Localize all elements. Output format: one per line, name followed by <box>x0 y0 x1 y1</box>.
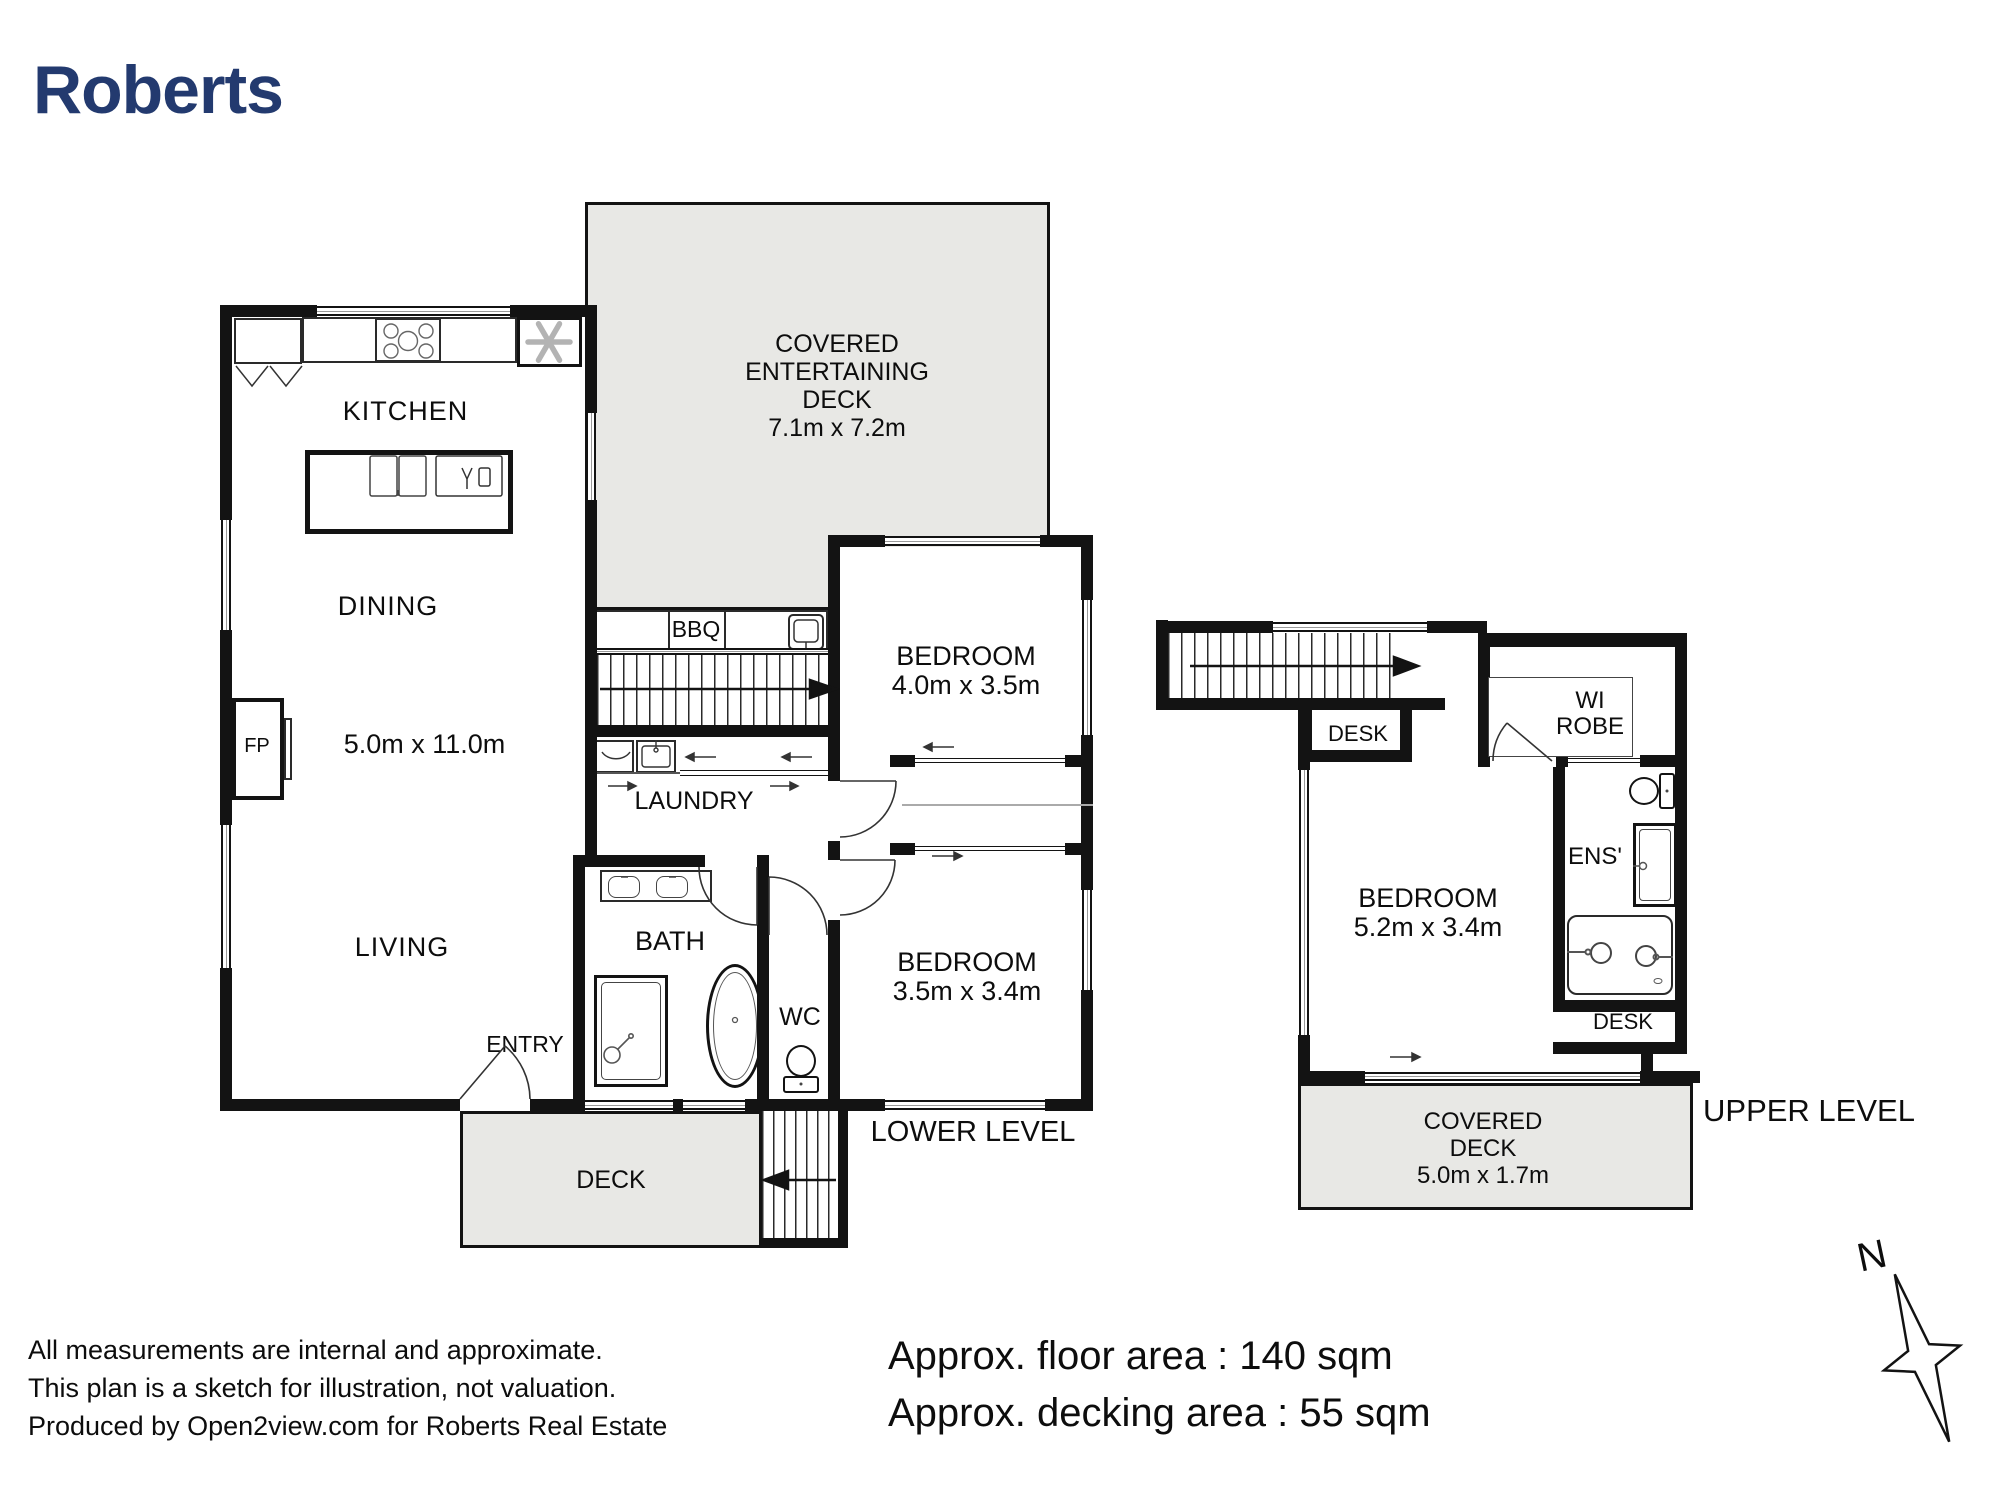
lower-level-title: LOWER LEVEL <box>848 1116 1098 1148</box>
desk1-label: DESK <box>1310 722 1406 747</box>
disclaimer-text: All measurements are internal and approx… <box>28 1331 667 1445</box>
wall <box>1640 1071 1700 1083</box>
desk2-label: DESK <box>1578 1010 1668 1035</box>
wall <box>1640 755 1687 767</box>
wall <box>1045 1099 1093 1111</box>
basin <box>1590 942 1612 964</box>
wall <box>828 841 840 860</box>
window <box>1082 600 1092 735</box>
wc-label: WC <box>772 1003 828 1031</box>
compass-north-label: N <box>1844 1229 1900 1283</box>
robe-wall <box>890 755 915 767</box>
upper-bedroom-label: BEDROOM 5.2m x 3.4m <box>1320 884 1536 942</box>
upper-covered-deck-label: COVERED DECK 5.0m x 1.7m <box>1353 1108 1613 1189</box>
toilet-cistern <box>783 1076 819 1093</box>
area-summary: Approx. floor area : 140 sqm Approx. dec… <box>888 1328 1431 1442</box>
wall <box>1081 535 1093 600</box>
wall <box>585 725 828 737</box>
window <box>885 536 1040 546</box>
toilet-cistern <box>1659 773 1675 809</box>
bath-label: BATH <box>610 926 730 956</box>
window <box>221 825 231 968</box>
bedroom2-door-arc <box>840 860 895 915</box>
wall <box>220 305 232 520</box>
bbq-sink <box>788 614 824 650</box>
wall <box>1675 1012 1687 1054</box>
deck-label: DECK <box>528 1166 694 1194</box>
toilet-bowl <box>786 1045 816 1077</box>
wall <box>1298 1071 1365 1083</box>
bbq-label: BBQ <box>666 617 726 643</box>
bedroom2-label: BEDROOM 3.5m x 3.4m <box>858 948 1076 1006</box>
wall <box>510 305 597 317</box>
ensuite-label: ENS' <box>1560 844 1630 871</box>
stairs-upper <box>1168 633 1400 698</box>
window <box>221 520 231 630</box>
basin <box>1635 945 1657 967</box>
robe-wall <box>1065 843 1093 855</box>
wall <box>1300 750 1412 762</box>
wall <box>1081 990 1093 1099</box>
wall <box>220 968 232 1111</box>
wall <box>1156 620 1168 710</box>
stairs-lower <box>597 655 825 725</box>
basin <box>656 876 688 898</box>
robe-sliding-door <box>1568 758 1640 763</box>
bedroom1-door-arc <box>840 781 896 837</box>
wall <box>757 855 769 1099</box>
dining-label: DINING <box>312 591 464 621</box>
disclaimer-line: All measurements are internal and approx… <box>28 1331 667 1369</box>
shower-base <box>1639 829 1671 901</box>
bifold-doors <box>236 366 302 386</box>
robe-sliding-door <box>915 758 1065 763</box>
living-dims-label: 5.0m x 11.0m <box>327 729 522 759</box>
bathtub-inner <box>713 972 757 1080</box>
sliding-door <box>1365 1072 1640 1081</box>
robe-wall <box>1065 755 1093 767</box>
window <box>683 1100 745 1110</box>
robe-sliding-door <box>915 846 1065 851</box>
entry-label: ENTRY <box>467 1032 583 1058</box>
wc-door-arc <box>769 877 827 935</box>
wall <box>573 855 585 1099</box>
shower-base <box>601 982 661 1080</box>
wall <box>585 305 597 413</box>
cooktop <box>375 318 441 362</box>
wall <box>220 630 232 825</box>
wall <box>1298 698 1310 770</box>
floor-plan-canvas: Roberts COVERED ENTERTAINING DECK 7.1m x… <box>0 0 2000 1500</box>
window <box>586 413 596 500</box>
toilet-bowl <box>1629 777 1659 805</box>
wall <box>745 1099 885 1111</box>
fireplace-label: FP <box>236 735 278 757</box>
wall <box>585 610 597 855</box>
wall <box>220 1099 460 1111</box>
wall <box>573 855 705 867</box>
robe-wall <box>890 843 915 855</box>
window <box>885 1100 1045 1110</box>
wall <box>585 500 597 610</box>
compass-star <box>1857 1262 1987 1454</box>
living-label: LIVING <box>324 932 480 962</box>
heater-box <box>517 317 582 367</box>
robe-divider <box>902 804 1093 806</box>
sliding-door <box>680 770 828 776</box>
wi-robe-label: WI ROBE <box>1528 688 1652 740</box>
wall <box>530 1099 585 1111</box>
kitchen-cupboard <box>234 318 302 364</box>
kitchen-label: KITCHEN <box>318 396 493 426</box>
basin <box>608 876 640 898</box>
laundry-tub <box>636 740 676 773</box>
wall <box>828 535 885 547</box>
window <box>317 306 510 316</box>
disclaimer-line: This plan is a sketch for illustration, … <box>28 1369 667 1407</box>
wall <box>828 535 840 755</box>
window <box>585 1100 673 1110</box>
window <box>1082 890 1092 990</box>
wall <box>1156 621 1273 633</box>
fireplace-hearth <box>284 718 292 780</box>
window <box>1273 622 1427 632</box>
wall <box>1553 767 1565 1012</box>
wall <box>220 305 317 317</box>
window <box>1299 770 1309 1035</box>
floor-area-text: Approx. floor area : 140 sqm <box>888 1328 1431 1385</box>
exterior-stairs <box>762 1111 848 1248</box>
agency-logo: Roberts <box>33 52 283 128</box>
bedroom1-label: BEDROOM 4.0m x 3.5m <box>858 642 1074 700</box>
wall <box>673 1099 683 1111</box>
washing-machine <box>594 740 634 773</box>
wall <box>1478 633 1687 647</box>
ens-vanity <box>1567 915 1673 995</box>
kitchen-island <box>305 450 513 534</box>
wall <box>1427 621 1487 633</box>
decking-area-text: Approx. decking area : 55 sqm <box>888 1385 1431 1442</box>
wall <box>828 920 840 1099</box>
disclaimer-line: Produced by Open2view.com for Roberts Re… <box>28 1407 667 1445</box>
window <box>592 648 828 655</box>
covered-entertaining-deck-label: COVERED ENTERTAINING DECK 7.1m x 7.2m <box>698 330 976 442</box>
wall <box>1553 1042 1675 1054</box>
laundry-label: LAUNDRY <box>608 787 780 815</box>
wall <box>828 755 840 781</box>
upper-level-title: UPPER LEVEL <box>1703 1094 1963 1129</box>
